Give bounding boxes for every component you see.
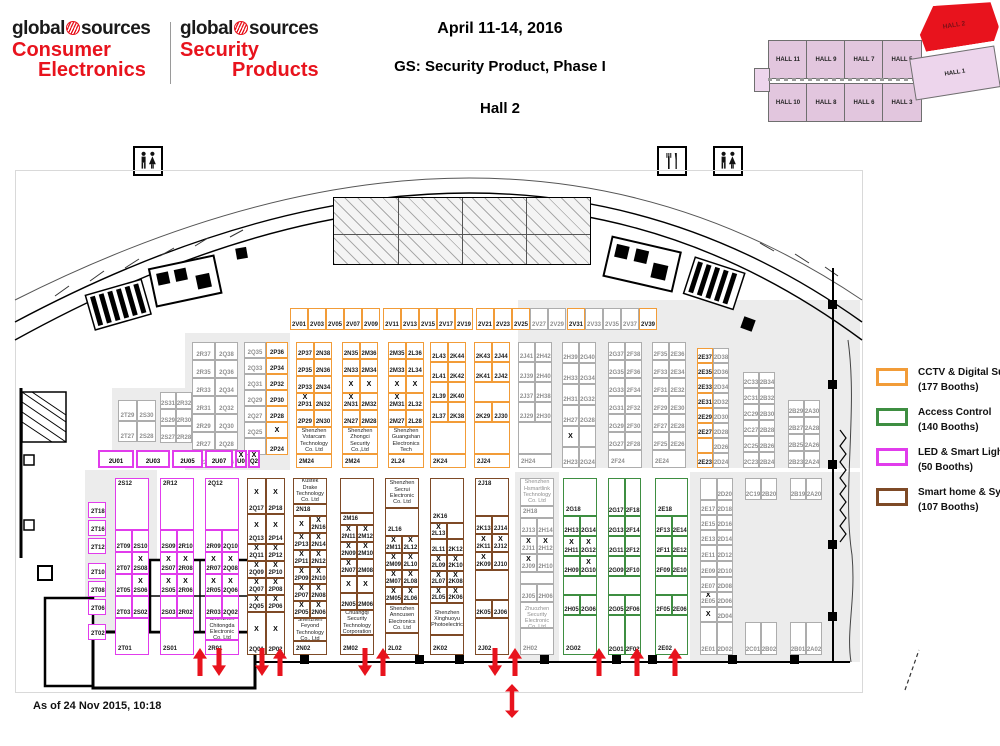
booth-x-mark: X	[436, 524, 441, 531]
booth-label: 2E05	[701, 599, 715, 606]
booth-cell: 2E07	[700, 577, 717, 592]
booth-cell: 2D16	[717, 515, 734, 530]
booth-cell: 2P34	[266, 358, 288, 374]
booth-cell: X2N08	[310, 584, 327, 601]
booth-label: 2Q05	[249, 604, 264, 611]
booth-label: 2K10	[448, 563, 462, 570]
booth-row: Kustek Drake Technology Co. Ltd	[293, 478, 327, 504]
booth-row: X	[562, 426, 596, 447]
booth-x-mark: X	[299, 568, 304, 576]
booth-label: 2K41	[476, 374, 490, 381]
booth-label: 2P31	[298, 402, 312, 409]
booth-row: X2L07X2K08	[430, 571, 464, 587]
booth-row: 2H132G14	[563, 516, 597, 536]
booth-row: 2T272S28	[118, 421, 156, 442]
booth-label: 2E36	[670, 352, 684, 359]
booth-cell: 2P29	[296, 410, 314, 427]
booth-cell: X2P12	[266, 544, 285, 561]
booth-x-mark: X	[498, 535, 503, 544]
booth-label: 2E13	[701, 537, 715, 544]
booth-cell: X2M05	[385, 587, 402, 604]
booth-cell: X2P02	[266, 612, 285, 655]
booth-label: 2Q36	[219, 370, 234, 377]
booth-label: 2D38	[714, 355, 728, 362]
booth-label: 2B02	[762, 647, 776, 654]
booth-cell: 2Q33	[244, 358, 266, 374]
booth-label: 2V37	[623, 322, 637, 329]
booth-x-mark: X	[481, 553, 486, 562]
booth-row: 2B192A20	[790, 478, 822, 500]
booth-label: 2Q12	[206, 479, 223, 487]
booth-cell: 2D04	[717, 607, 734, 622]
booth-x-mark: X	[586, 537, 591, 548]
booth-row: 2G012F02	[608, 615, 641, 655]
exhibitor-name: Shenzhen Anncusen Electronics Co. Ltd	[385, 604, 419, 633]
booth-cell: 2E31	[697, 393, 713, 408]
booth-cell: 2M02	[340, 635, 374, 655]
booth-cell: 2L32	[406, 393, 424, 410]
booth-row: 2F252E26	[652, 432, 686, 450]
booth-cell: X2J12	[492, 534, 509, 552]
booth-row: 2E372D38	[697, 348, 729, 363]
booth-label: 2T02	[89, 631, 105, 639]
legend-count: (107 Booths)	[918, 502, 979, 513]
booth-label: 2L07	[432, 579, 446, 586]
booth-label: 2E37	[698, 355, 712, 362]
booth-row: 2G372F38	[608, 342, 642, 360]
logo-word-sources: sources	[249, 18, 318, 39]
booth-cell: 2P32	[266, 374, 288, 390]
booth-label: 2N05	[341, 602, 355, 609]
booth-row: 2L432K44	[430, 342, 466, 362]
booth-cell: 2G13	[608, 516, 625, 536]
booth-x-mark: X	[408, 537, 413, 545]
page: { "header": { "logo_word1": "global", "l…	[0, 0, 1000, 746]
booth-label: 2Q35	[248, 350, 263, 357]
booth-label: 2B24	[760, 460, 774, 467]
booth-row: 2F24	[608, 450, 642, 468]
booth-x-mark: X	[252, 452, 257, 459]
booth-label: 2C27	[744, 428, 758, 435]
booth-cell: 2G02	[563, 615, 597, 655]
booth-cell: 2C25	[743, 436, 759, 452]
booth-row: X2L09X2K10	[430, 555, 464, 571]
booth-label: 2F38	[627, 352, 641, 359]
booth-label: 2E17	[701, 507, 715, 514]
booth-row: 2V37	[621, 308, 639, 330]
booth-x-mark: X	[228, 575, 233, 588]
mini-hall-map: HALL 11HALL 9HALL 7HALL 5HALL 10HALL 8HA…	[750, 0, 1000, 130]
booth-label: 2M33	[389, 368, 404, 375]
booth-row: 2R01	[205, 640, 239, 655]
booth-label: 2N08	[311, 593, 325, 600]
booth-cell: 2E23	[697, 453, 713, 468]
booth-row: 2R292Q30	[192, 414, 238, 432]
booth-x-mark: X	[453, 572, 458, 579]
booth-x-mark: X	[299, 517, 304, 532]
booth-cell: 2K40	[448, 382, 466, 402]
booth-cell: X2L09	[430, 555, 447, 571]
booth-label: 2J06	[494, 610, 507, 617]
booth-row: 2H09X2G10	[563, 556, 597, 576]
booth-row	[518, 422, 552, 454]
booth-label: 2N10	[311, 576, 325, 583]
booth-label: 2E12	[673, 548, 687, 555]
booth-cell: 2N35	[342, 342, 360, 359]
booth-cell: 2G18	[563, 478, 597, 516]
booth-label: 2R32	[177, 401, 191, 408]
booth-cell: X	[562, 426, 579, 447]
booth-label: 2B26	[760, 444, 774, 451]
booth-label: 2D04	[718, 614, 732, 621]
booth-cell: 2G37	[608, 342, 625, 360]
booth-row: Shenzhen Zhuozhen Security Electronic Co…	[520, 602, 554, 628]
booth-row: 2R332Q34	[192, 378, 238, 396]
booth-label: 2Q08	[223, 566, 238, 573]
booth-cell: 2H27	[562, 405, 579, 426]
hatch-divider	[526, 198, 527, 264]
booth-label: 2V05	[328, 322, 342, 329]
booth-x-mark: X	[299, 602, 304, 610]
booth-row: 2T18	[88, 502, 106, 518]
booth-label: 2U03	[146, 459, 160, 466]
booth-row: 2P372N38	[296, 342, 332, 359]
booth-cell: X2L05	[430, 587, 447, 603]
booth-cell: X2N07	[340, 559, 357, 576]
booth-cell: 2R10	[177, 530, 194, 552]
booth-label: 2Q38	[219, 352, 234, 359]
booth-cell: 2K41	[474, 362, 492, 382]
exhibitor-name: Shenzhen Guangshan Electronics Tech	[388, 427, 424, 454]
booth-row: X2H11X2G12	[563, 536, 597, 556]
booth-label: 2D32	[714, 400, 728, 407]
booth-label: 2F09	[656, 568, 670, 575]
booth-cell: 2Q31	[244, 374, 266, 390]
booth-row: 2P352N36	[296, 359, 332, 376]
booth-cell: 2B32	[759, 388, 775, 404]
booth-cell: 2L11	[430, 539, 447, 555]
booth-row: Shenzhen Secrui Electronic Co. Ltd	[385, 478, 419, 508]
booth-cell	[700, 478, 717, 500]
booth-row: 2E072D08	[700, 577, 733, 592]
booth-cell: X2K08	[447, 571, 464, 587]
booth-row: Shenzhen Anncusen Electronics Co. Ltd	[385, 604, 419, 633]
booth-x-mark: X	[349, 394, 354, 402]
booth-label: 2T18	[89, 509, 105, 517]
booth-x-mark: X	[273, 545, 278, 553]
booth-cell: X	[406, 376, 424, 393]
booth-row: 2S032R02	[160, 596, 194, 618]
booth-cell: X	[360, 376, 378, 393]
booth-cell: X2J11	[520, 536, 537, 554]
booth-cell: 2H40	[535, 362, 552, 382]
booth-row: X2P07X2N08	[293, 584, 327, 601]
booth-row: 2N272M28	[342, 410, 378, 427]
booth-cell: 2V39	[639, 308, 657, 330]
booth-cell: 2V17	[437, 308, 455, 330]
booth-cell: X	[340, 576, 357, 593]
booth-cell: X2P11	[293, 550, 310, 567]
skylight-hatch-area	[333, 197, 591, 265]
booth-row: 2F112E12	[655, 536, 688, 556]
booth-x-mark: X	[391, 571, 396, 579]
booth-row: 2E012D02	[700, 622, 733, 655]
booth-label: 2U01	[109, 459, 123, 466]
booth-cell: 2H14	[537, 518, 554, 536]
booth-cell: X2Q05	[247, 595, 266, 612]
booth-label: 2N16	[311, 525, 325, 532]
legend-label: LED & Smart Lighti	[918, 447, 1000, 458]
booth-row: X2P13X2N14	[293, 533, 327, 550]
booth-label: 2E35	[698, 370, 712, 377]
booth-label: 2N27	[344, 419, 358, 426]
booth-label: 2E15	[701, 522, 715, 529]
booth-x-mark: X	[569, 537, 574, 548]
booth-cell: 2J39	[518, 362, 535, 382]
booth-label: 2K06	[448, 595, 462, 602]
booth-label: 2D10	[718, 569, 732, 576]
booth-cell: 2L41	[430, 362, 448, 382]
booth-row: X2R05X2Q06	[205, 574, 239, 596]
booth-label: 2P34	[270, 366, 284, 373]
booth-row: 2T06	[88, 599, 106, 615]
booth-row: 2E24	[652, 450, 686, 468]
booth-cell: 2T29	[118, 400, 137, 421]
logo-word-sources: sources	[81, 18, 150, 39]
booth-cell: 2F33	[652, 360, 669, 378]
booth-x-mark: X	[183, 553, 188, 566]
booth-label: 2H30	[536, 414, 550, 421]
booth-cell: 2M27	[388, 410, 406, 427]
booth-row: 2H18	[520, 506, 554, 518]
booth-row: 2E02	[655, 615, 688, 655]
booth-label: 2F33	[654, 370, 668, 377]
booth-label: 2V07	[346, 322, 360, 329]
booth-cell: 2V01	[290, 308, 308, 330]
booth-label: 2G01	[609, 647, 624, 654]
booth-label: 2B30	[760, 412, 774, 419]
booth-cell: 2U03	[136, 450, 170, 468]
booth-cell: 2E10	[672, 556, 689, 576]
booth-label: 2N14	[311, 542, 325, 549]
booth-label: 2Q02	[223, 610, 238, 617]
booth-label: 2B34	[760, 380, 774, 387]
booth-cell: 2L34	[406, 359, 424, 376]
booth-cell: 2S01	[160, 618, 194, 655]
booth-cell: 2J14	[492, 516, 509, 534]
booth-x-mark: X	[273, 613, 278, 647]
booth-x-mark: X	[254, 515, 259, 536]
booth-row: 2G052F06	[608, 595, 641, 615]
booth-row: 2V33	[585, 308, 603, 330]
booth-label: 2B27	[789, 426, 803, 433]
booth-label: 2N02	[294, 646, 310, 654]
booth-cell: 2D12	[717, 545, 734, 561]
booth-cell: 2J41	[518, 342, 535, 362]
booth-row: 2H272G28	[562, 405, 596, 426]
booth-cell: 2A26	[804, 434, 820, 451]
booth-label: 2J30	[494, 414, 507, 421]
booth-row: 2S092R10	[160, 530, 194, 552]
legend-count: (140 Booths)	[918, 422, 979, 433]
booth-label: 2E29	[698, 415, 712, 422]
booth-label: 2J10	[494, 562, 507, 569]
booth-x-mark: X	[299, 585, 304, 593]
logo-consumer-electronics: globalsources Consumer Electronics	[12, 18, 150, 80]
booth-x-mark: X	[395, 394, 400, 402]
booth-cell: 2C31	[743, 388, 759, 404]
booth-row: 2V27	[530, 308, 548, 330]
booth-label: 2G10	[581, 568, 596, 575]
booth-cell: 2R12	[160, 478, 194, 530]
booth-label: 2R05	[206, 588, 220, 595]
booth-label: 2E28	[670, 424, 684, 431]
booth-row: 2K02	[430, 635, 464, 655]
booth-row: 2J02	[475, 618, 509, 655]
booth-row: Shenzhen Vstarcam Technology Co. Ltd	[296, 427, 332, 454]
booth-label: 2E01	[701, 647, 715, 654]
booth-label: 2G05	[609, 607, 624, 614]
booth-row: XX	[388, 376, 424, 393]
booth-cell: X2M12	[357, 525, 374, 542]
booth-cell: 2J13	[520, 518, 537, 536]
booth-row: 2G112F12	[608, 536, 641, 556]
booth-row: X2M09X2L10	[385, 553, 419, 570]
booth-row	[340, 478, 374, 513]
logo-word-global: global	[12, 18, 65, 39]
booth-cell: 2B24	[759, 452, 775, 468]
booth-row: 2K16	[430, 478, 464, 523]
booth-label: 2D06	[718, 599, 732, 606]
booth-cell: 2B20	[761, 478, 777, 500]
booth-x-mark: X	[586, 557, 591, 568]
booth-cell: 2G06	[580, 595, 597, 615]
booth-x-mark: X	[273, 515, 278, 536]
booth-cell	[474, 382, 510, 402]
booth-cell: X2N14	[310, 533, 327, 550]
booth-row: Shenzhen Feyond Technology Co., Ltd	[293, 618, 327, 641]
mini-map-hall: HALL 9	[806, 40, 846, 79]
booth-cell: 2D10	[717, 561, 734, 577]
booth-cell: 2M06	[357, 593, 374, 610]
booth-row: 2M272L28	[388, 410, 424, 427]
booth-label: 2K38	[450, 414, 464, 421]
booth-label: 2M07	[386, 579, 401, 586]
booth-label: 2S12	[116, 479, 132, 487]
booth-label: 2C23	[744, 460, 758, 467]
booth-label: 2H39	[563, 355, 577, 362]
booth-row: 2V21	[476, 308, 494, 330]
booth-x-mark: X	[436, 556, 441, 563]
booth-label: 2L41	[432, 374, 446, 381]
booth-cell: 2V23	[494, 308, 512, 330]
booth-cell: X2G10	[580, 556, 597, 576]
booth-cell: 2G33	[608, 378, 625, 396]
booth-cell: 2G05	[608, 595, 625, 615]
booth-x-mark: X	[408, 571, 413, 579]
booth-label: 2P06	[268, 604, 282, 611]
booth-cell: 2T09	[115, 530, 132, 552]
booth-row: 2L412K42	[430, 362, 466, 382]
booth-x-mark: X	[346, 560, 351, 568]
booth-cell: 2E32	[669, 378, 686, 396]
booth-label: 2J05	[522, 594, 535, 601]
booth-cell: X2Q17	[247, 478, 266, 514]
booth-label: 2C33	[744, 380, 758, 387]
booth-label: 2M05	[386, 596, 401, 603]
booth-row: 2S312R32	[160, 392, 192, 409]
booth-label: 2G37	[609, 352, 624, 359]
booth-row: 2V35	[603, 308, 621, 330]
booth-row: X2S07X2R08	[160, 552, 194, 574]
booth-cell: 2F31	[652, 378, 669, 396]
booth-x-mark: X	[275, 423, 280, 437]
booth-cell: X2G12	[580, 536, 597, 556]
booth-row: 2E332D34	[697, 378, 729, 393]
booth-row: 2C292B30	[743, 404, 775, 420]
booth-label: 2G29	[609, 424, 624, 431]
booth-cell: 2S30	[137, 400, 156, 421]
booth-label: 2K09	[476, 562, 490, 569]
booth-cell: 2V25	[512, 308, 530, 330]
booth-label: 2V23	[496, 322, 510, 329]
booth-label: 2G40	[580, 355, 595, 362]
booth-label: 2T03	[117, 610, 131, 617]
mini-map-hall: HALL 10	[768, 83, 808, 122]
booth-row: X2Q01X2P02	[247, 612, 285, 655]
booth-cell: 2V31	[567, 308, 585, 330]
booth-cell: 2P30	[266, 390, 288, 406]
booth-cell: 2H10	[537, 554, 554, 572]
booth-row: 2Q312P32	[244, 374, 288, 390]
booth-cell: 2L36	[406, 342, 424, 359]
booth-row: 2L112K12	[430, 539, 464, 555]
booth-row: Chuangqi Security Technology Corporation	[340, 610, 374, 635]
booth-cell: 2S03	[160, 596, 177, 618]
booth-label: 2M12	[358, 534, 373, 541]
booth-cell: 2G09	[608, 556, 625, 576]
booth-label: 2V29	[550, 322, 564, 329]
booth-cell: 2M33	[388, 359, 406, 376]
booth-label: 2N30	[316, 419, 330, 426]
booth-label: 2K43	[476, 354, 490, 361]
booth-row: 2J18	[475, 478, 509, 516]
logo-line-consumer: Consumer	[12, 40, 150, 60]
booth-cell: 2R09	[205, 530, 222, 552]
booth-row: 2V23	[494, 308, 512, 330]
booth-row	[608, 576, 641, 595]
booth-cell: 2F18	[625, 478, 642, 516]
booth-label: 2J24	[475, 459, 490, 467]
globe-icon	[66, 21, 80, 35]
booth-cell: 2B25	[788, 434, 804, 451]
booth-label: 2R35	[196, 370, 210, 377]
booth-cell	[655, 576, 688, 595]
booth-cell: 2T06	[88, 599, 106, 615]
booth-label: 2F30	[627, 424, 641, 431]
booth-x-mark: X	[303, 394, 308, 402]
exhibitor-name: Shenzhen Xinghuoyu Photoelectric	[430, 603, 464, 635]
booth-label: 2M35	[389, 351, 404, 358]
booth-row: 2R032Q02	[205, 596, 239, 618]
booth-cell: 2F32	[625, 396, 642, 414]
booth-cell: X2M09	[385, 553, 402, 570]
booth-label: 2U09	[235, 459, 247, 466]
booth-label: 2E32	[670, 388, 684, 395]
booth-cell: 2M28	[360, 410, 378, 427]
booth-x-mark: X	[391, 588, 396, 596]
booth-label: 2G18	[564, 507, 581, 515]
